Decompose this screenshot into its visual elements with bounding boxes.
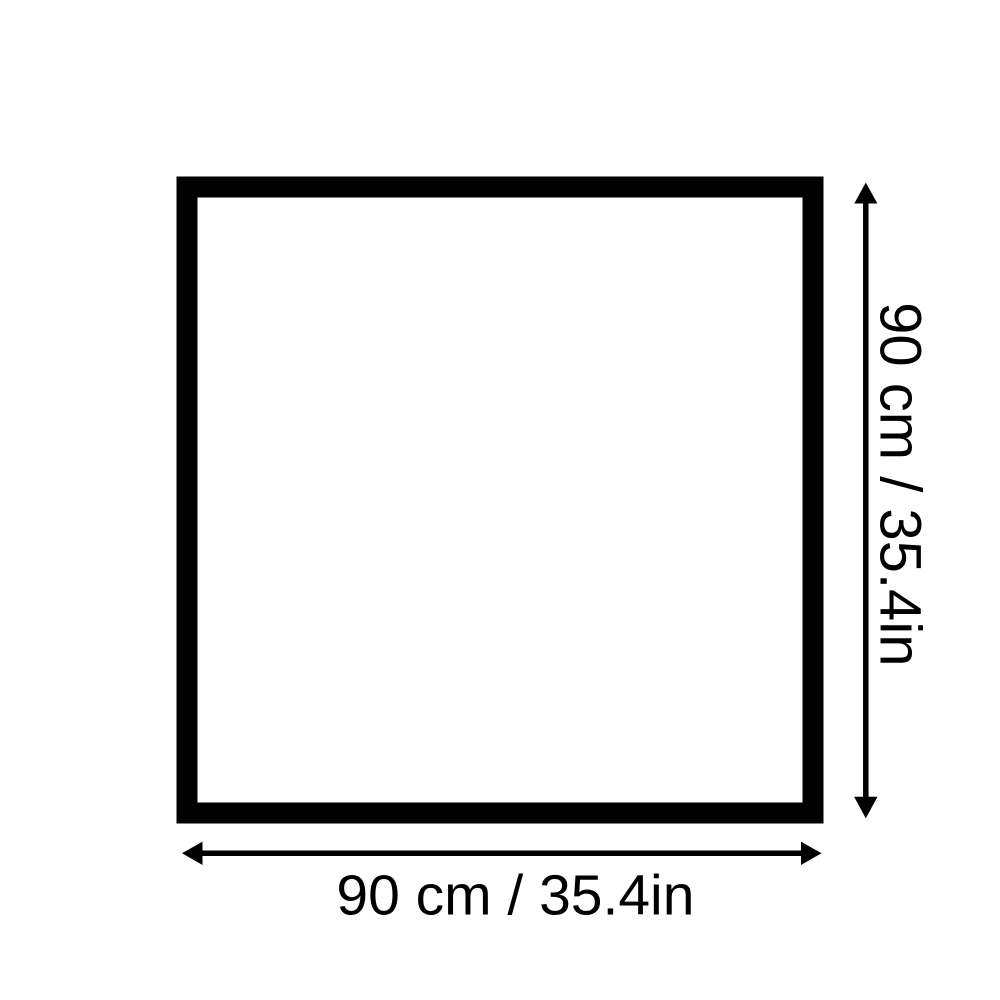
svg-text:90 cm / 35.4in: 90 cm / 35.4in (336, 864, 694, 928)
svg-text:90 cm / 35.4in: 90 cm / 35.4in (868, 302, 933, 666)
